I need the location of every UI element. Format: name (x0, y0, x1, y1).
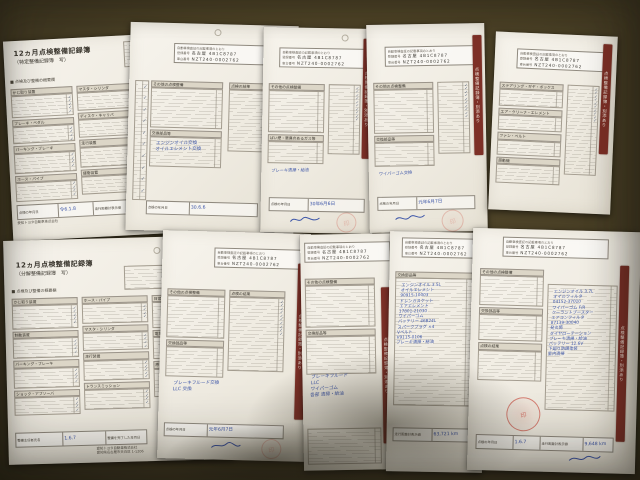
form-grid: ✓ ✓ ✓ ✓ ✓ (11, 93, 74, 118)
footer-strip: 走行距離計表示値 63,721 km (392, 427, 474, 442)
footer-strip: 点検の年月日 元年6月7日 (377, 195, 475, 211)
record-book-subtitle: （分解整備記録簿 写） (16, 269, 71, 277)
handwritten-signature (209, 439, 243, 452)
footer-mileage-label: 走行距離計表示値 (540, 437, 583, 451)
handwritten-parts-list: エンジンオイル 3.7L オイルフィルタ 04152-37010 ワイパーゴム … (547, 288, 616, 356)
form-grid (267, 142, 323, 165)
check-marks: ✓ ✓ ✓ ✓ ✓ ✓ ✓ ✓ ✓ ✓ (355, 86, 359, 122)
red-side-banner: 点検整備記録簿・別添あり (616, 266, 630, 442)
checklist-column: その他の点検整備 ばい煙・悪臭のあるガス等 (267, 83, 324, 166)
tick-column: ✓ ✓ ✓ ✓ ✓ ✓ ✓ ✓ ✓ ✓ (328, 84, 361, 155)
sheet-top-right: 自動車検査証の記載事項のとおり 登録番号名古屋 4B1C8787 車台番号NZT… (488, 31, 618, 214)
registration-header-box: 自動車検査証の記載事項のとおり 登録番号名古屋 4B1C8787 車台番号NZT… (279, 47, 367, 69)
footer-date-label: 点検の年月日 (165, 423, 208, 436)
overview-label: ■ 点検及び整備の概要欄 (10, 77, 55, 85)
photo-vehicle-inspection-records: 12ヵ月点検整備記録簿 （特定整備記録簿 写） ■ 点検及び整備の概要欄 かじ取… (0, 0, 640, 480)
form-grid: ✓ ✓ ✓ ✓ (14, 396, 80, 416)
form-grid: ✓ ✓ ✓ ✓ ✓ (83, 359, 150, 381)
tick-column: ✓ ✓ ✓ ✓ ✓ ✓ ✓ ✓ ✓ ✓ (564, 85, 600, 176)
form-grid: ✓ ✓ ✓ ✓ ✓ (12, 304, 79, 330)
check-marks: ✓ ✓ ✓ ✓ ✓ (144, 360, 148, 378)
form-grid (374, 142, 434, 167)
checklist-column: 点検の結果 ✓ ✓ ✓ ✓ ✓ ✓ ✓ ✓ ✓ ✓ (227, 290, 285, 375)
footer-strip: 点検の年月日 30年6月6日 (269, 197, 365, 213)
vin-value: NZT240-0002762 (297, 61, 345, 67)
form-grid (499, 89, 564, 109)
form-grid: ✓ ✓ ✓ ✓ (82, 302, 149, 324)
check-marks: ✓ ✓ ✓ ✓ ✓ ✓ ✓ ✓ ✓ ✓ (140, 82, 147, 198)
check-marks: ✓ ✓ ✓ ✓ ✓ ✓ ✓ ✓ ✓ ✓ (464, 83, 468, 119)
vin-value: NZT240-0002762 (191, 56, 239, 62)
form-grid (498, 115, 563, 133)
vin-label: 車台番号 (388, 59, 401, 64)
record-book-subtitle: （特定整備記録簿 写） (14, 56, 69, 66)
vin-label: 車台番号 (282, 60, 295, 65)
vin-value: NZT240-0002762 (534, 62, 582, 69)
company-seal-stamp: 印 (334, 211, 358, 235)
check-marks: ✓ ✓ ✓ ✓ (71, 152, 75, 166)
checklist-column: かじ取り装置 ✓ ✓ ✓ ✓ ✓ ブレーキ・ペダル ✓ ✓ ✓ ✓ パーキング・… (10, 86, 78, 204)
footer-strip: 点検の年月日 30.6.6 (146, 200, 258, 217)
checklist-column: その他の点検整備 交換部品等 (149, 80, 223, 170)
vin-value: NZT240-0002762 (520, 250, 568, 256)
form-grid (495, 163, 560, 185)
red-side-banner: 点検整備記録簿・別添あり (472, 35, 483, 155)
registration-header-box: 自動車検査証の記載事項のとおり 登録番号名古屋 4B1C8787 車台番号NZT… (174, 43, 266, 65)
reg-label: 登録番号 (520, 55, 533, 61)
handwritten-note: エンジンオイル交換 オイルエレメント交換 (155, 141, 202, 153)
handwritten-date: 1.6.7 (515, 440, 527, 446)
check-marks: ✓ ✓ ✓ ✓ ✓ (73, 306, 77, 324)
tick-column: ✓ ✓ ✓ ✓ ✓ ✓ ✓ ✓ ✓ ✓ (437, 81, 470, 154)
form-grid (305, 285, 376, 328)
company-address: 愛知県名古屋市天白区 1-1206 (97, 450, 144, 455)
company-round-seal: 印 (503, 394, 544, 435)
sheet-top-3: 自動車検査証の記載事項のとおり 登録番号名古屋 4B1C8787 車台番号NZT… (260, 27, 376, 234)
vin-label: 車台番号 (307, 255, 320, 260)
handwritten-date: 元年6月7日 (418, 199, 443, 206)
vin-label: 車台番号 (217, 261, 230, 266)
vin-label: 車台番号 (519, 61, 532, 67)
vin-label: 車台番号 (177, 56, 190, 61)
checklist-column: その他の点検整備 交換部品等 (305, 278, 377, 378)
handwritten-signature (288, 213, 322, 226)
form-grid (306, 336, 377, 375)
form-grid: ✓ ✓ ✓ ✓ ✓ ✓ ✓ ✓ ✓ ✓ (227, 297, 285, 372)
check-marks: ✓ ✓ ✓ ✓ (145, 389, 149, 403)
tick-column: ✓ ✓ ✓ ✓ ✓ ✓ ✓ ✓ ✓ ✓ (132, 80, 149, 200)
form-grid: ✓ ✓ ✓ ✓ (13, 337, 80, 359)
check-marks: ✓ ✓ ✓ ✓ (75, 368, 79, 382)
reg-label: 登録番号 (177, 50, 190, 55)
vin-value: NZT240-0002762 (419, 251, 467, 257)
vin-label: 車台番号 (506, 250, 519, 255)
footer-date-label: 点検の年月日 (147, 201, 190, 214)
registration-header-box: 自動車検査証の記載事項のとおり 登録番号名古屋 4B1C8787 車台番号NZT… (214, 247, 308, 269)
registration-header-box: 自動車検査証の記載事項のとおり 登録番号名古屋 4B1C8787 車台番号NZT… (502, 237, 608, 260)
sheet-bottom-3: 自動車検査証の記載事項のとおり 登録番号名古屋 4B1C8787 車台番号NZT… (300, 233, 396, 471)
company-seal-stamp: 印 (439, 207, 466, 234)
check-marks: ✓ ✓ ✓ ✓ ✓ ✓ ✓ ✓ ✓ ✓ (279, 300, 283, 336)
footer-date-label: 点検の年月日 (378, 197, 417, 210)
check-marks: ✓ ✓ ✓ ✓ (75, 397, 79, 411)
form-grid: ✓ ✓ ✓ ✓ (84, 388, 151, 410)
vin-label: 車台番号 (405, 250, 418, 255)
footer-date-label: 点検の年月日 (270, 198, 309, 211)
handwritten-mileage: 63,721 km (433, 432, 458, 438)
check-marks: ✓ ✓ ✓ ✓ ✓ (68, 95, 72, 113)
vin-value: NZT240-0002762 (403, 59, 451, 65)
check-marks: ✓ ✓ ✓ ✓ (144, 333, 148, 347)
punch-hole (153, 247, 160, 254)
form-grid (477, 350, 542, 382)
reg-label: 登録番号 (506, 244, 519, 249)
reg-label: 登録番号 (307, 249, 320, 254)
handwritten-parts-list: エンジンオイル 3.5L オイルエレメント 90915-10003 ドレンガスケ… (396, 281, 471, 345)
reg-label: 登録番号 (405, 244, 418, 249)
check-marks: ✓ ✓ ✓ ✓ (143, 304, 147, 318)
handwritten-note: ブレーキフルード LLC ワイパーゴム 各部 清掃・給油 (310, 373, 348, 399)
vin-value: NZT240-0002762 (232, 261, 280, 267)
form-grid: ✓ ✓ ✓ ✓ (83, 332, 149, 352)
footer-date-label: 点検の年月日 (18, 204, 60, 219)
checklist-column: その他の点検整備 交換部品等 点検の結果 (477, 268, 544, 383)
handwritten-mileage: 9,648 km (585, 442, 607, 448)
form-grid (479, 275, 544, 307)
handwritten-signature (393, 212, 427, 225)
form-grid (165, 347, 224, 379)
form-grid (373, 89, 434, 134)
form-grid: ✓ ✓ ✓ ✓ (13, 367, 80, 389)
footer-strip: 点検の年月日 1.6.7 走行距離計表示値 9,648 km (475, 434, 613, 453)
handwritten-signature (567, 452, 603, 465)
registration-header-box: 自動車検査証の記載事項のとおり 登録番号名古屋 4B1C8787 車台番号NZT… (516, 48, 609, 72)
checklist-column: ホース・パイプ ✓ ✓ ✓ ✓ マスタ・シリンダ ✓ ✓ ✓ ✓ 走行装置 ✓ … (82, 295, 151, 411)
footer-date-label: 点検の年月日 (476, 435, 513, 449)
handwritten-date: 1.6.7 (64, 435, 76, 442)
registration-header-box: 自動車検査証の記載事項のとおり 登録番号名古屋 4B1C8787 車台番号NZT… (385, 45, 475, 67)
form-grid: ✓ ✓ ✓ ✓ (15, 180, 78, 202)
handwritten-date: 30.6.6 (191, 206, 206, 212)
handwritten-note: ブレーキフルード交換 LLC 交換 (172, 381, 219, 393)
footer-chief-label: 整備主任者氏名 (16, 432, 63, 446)
form-grid (497, 139, 562, 157)
form-grid (307, 427, 382, 464)
sheet-bottom-right: 自動車検査証の記載事項のとおり 登録番号名古屋 4B1C8787 車台番号NZT… (467, 228, 640, 474)
vin-value: NZT240-0002762 (322, 255, 370, 261)
sheet-top-4: 自動車検査証の記載事項のとおり 登録番号名古屋 4B1C8787 車台番号NZT… (366, 23, 488, 233)
punch-hole (342, 34, 349, 41)
reg-label: 登録番号 (282, 54, 295, 59)
company-seal-stamp: 印 (259, 437, 283, 461)
check-marks: ✓ ✓ ✓ ✓ (70, 126, 74, 140)
sheet-bottom-2: 自動車検査証の記載事項のとおり 登録番号名古屋 4B1C8787 車台番号NZT… (157, 230, 311, 462)
punch-hole (214, 29, 221, 36)
footer-complete-label: 整備を完了した年月日 (106, 430, 146, 444)
checklist-column: その他の点検整備 交換部品等 (165, 288, 225, 380)
reg-label: 登録番号 (217, 255, 230, 260)
handwritten-note: ブレーキ清掃・給油 (271, 167, 309, 173)
form-grid (268, 90, 325, 133)
checklist-column: ステアリング・ギヤ・ボックス エア・クリーナ・エレメント ファン・ベルト 原動機 (495, 82, 563, 187)
handwritten-note: ワイパーゴム交換 (379, 170, 413, 177)
handwritten-date: 30年6月6日 (310, 202, 336, 208)
handwritten-date: 令6.1.8 (60, 206, 77, 213)
checklist-column: その他の点検整備 交換部品等 (373, 82, 434, 169)
checklist-column: かじ取り装置 ✓ ✓ ✓ ✓ ✓ 制動装置 ✓ ✓ ✓ ✓ パーキング・ブレーキ… (12, 297, 81, 417)
overview-label: ■ 点検及び整備の概要欄 (11, 288, 56, 295)
form-grid: ✓ ✓ ✓ ✓ (12, 124, 75, 144)
registration-header-box: 自動車検査証の記載事項のとおり 登録番号名古屋 4B1C8787 車台番号NZT… (304, 241, 390, 262)
footer-strip: 点検の年月日 元年6月7日 (164, 422, 284, 439)
footer-mileage-label: 走行距離計表示値 (393, 428, 432, 441)
form-grid (150, 88, 223, 130)
form-grid (478, 314, 543, 342)
check-marks: ✓ ✓ ✓ ✓ (72, 181, 76, 195)
form-grid (166, 295, 225, 339)
check-marks: ✓ ✓ ✓ ✓ ✓ ✓ ✓ ✓ ✓ ✓ (593, 87, 598, 123)
check-marks: ✓ ✓ ✓ ✓ (74, 339, 78, 353)
form-grid: ✓ ✓ ✓ ✓ (14, 151, 77, 174)
handwritten-date: 元年6月7日 (209, 428, 233, 434)
reg-label: 登録番号 (388, 53, 401, 58)
